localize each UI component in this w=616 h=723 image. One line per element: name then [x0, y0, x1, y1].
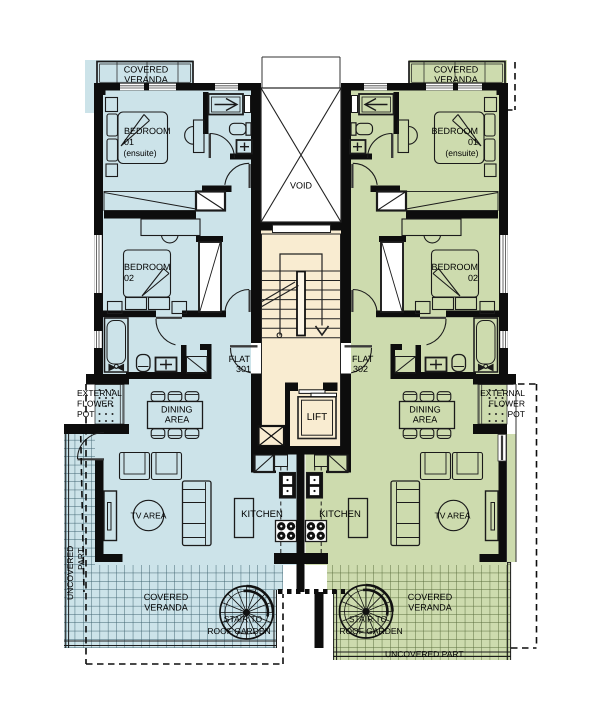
- svg-text:AREA: AREA: [165, 415, 190, 425]
- svg-text:BEDROOM: BEDROOM: [431, 126, 478, 136]
- svg-text:STAIR TO: STAIR TO: [224, 614, 263, 624]
- svg-text:02: 02: [124, 273, 134, 283]
- svg-text:(ensuite): (ensuite): [445, 148, 478, 158]
- svg-text:COVERED: COVERED: [434, 65, 479, 75]
- svg-text:UNCOVERED: UNCOVERED: [65, 546, 75, 600]
- svg-text:02: 02: [468, 273, 478, 283]
- svg-text:01: 01: [468, 137, 478, 147]
- svg-text:LIFT: LIFT: [307, 412, 328, 423]
- svg-text:POT: POT: [77, 409, 94, 419]
- svg-text:BEDROOM: BEDROOM: [431, 262, 478, 272]
- svg-text:PART: PART: [76, 548, 86, 570]
- svg-text:EXTERNAL: EXTERNAL: [77, 388, 122, 398]
- svg-text:UNCOVERED PART: UNCOVERED PART: [385, 649, 464, 659]
- svg-text:01: 01: [124, 137, 134, 147]
- svg-text:VERANDA: VERANDA: [408, 603, 452, 613]
- svg-text:TV AREA: TV AREA: [131, 511, 167, 521]
- svg-text:TV AREA: TV AREA: [435, 511, 471, 521]
- svg-text:DINING: DINING: [409, 405, 441, 415]
- svg-text:ROOF GARDEN: ROOF GARDEN: [207, 626, 270, 636]
- svg-text:FLAT: FLAT: [352, 354, 374, 364]
- svg-text:301: 301: [236, 364, 251, 374]
- svg-text:STAIR TO: STAIR TO: [349, 614, 388, 624]
- svg-text:VERANDA: VERANDA: [124, 75, 168, 85]
- svg-text:KITCHEN: KITCHEN: [319, 509, 361, 520]
- svg-text:DINING: DINING: [161, 405, 193, 415]
- svg-text:AREA: AREA: [413, 415, 438, 425]
- svg-text:VERANDA: VERANDA: [434, 75, 478, 85]
- svg-text:(ensuite): (ensuite): [124, 148, 157, 158]
- svg-text:302: 302: [353, 364, 368, 374]
- svg-text:COVERED: COVERED: [144, 592, 189, 602]
- svg-text:POT: POT: [508, 409, 525, 419]
- svg-text:COVERED: COVERED: [408, 592, 453, 602]
- svg-text:VOID: VOID: [290, 181, 313, 191]
- svg-text:KITCHEN: KITCHEN: [241, 509, 283, 520]
- svg-text:BEDROOM: BEDROOM: [124, 126, 171, 136]
- svg-text:EXTERNAL: EXTERNAL: [480, 388, 525, 398]
- svg-text:VERANDA: VERANDA: [144, 603, 188, 613]
- svg-text:COVERED: COVERED: [124, 65, 169, 75]
- svg-text:ROOF GARDEN: ROOF GARDEN: [339, 626, 402, 636]
- svg-text:FLAT: FLAT: [229, 354, 251, 364]
- svg-text:BEDROOM: BEDROOM: [124, 262, 171, 272]
- svg-text:FLOWER: FLOWER: [489, 399, 525, 409]
- svg-text:FLOWER: FLOWER: [77, 399, 113, 409]
